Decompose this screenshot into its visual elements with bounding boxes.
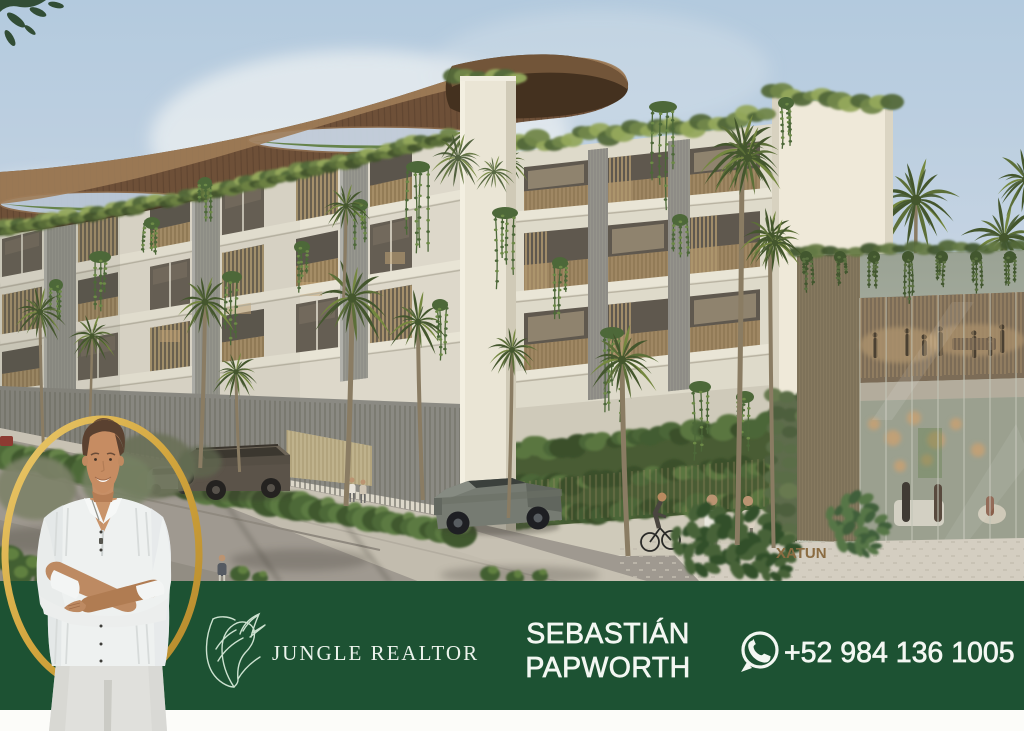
svg-text:PAPWORTH: PAPWORTH: [525, 652, 690, 684]
svg-text:SEBASTIÁN: SEBASTIÁN: [526, 618, 690, 650]
svg-text:+52 984 136 1005: +52 984 136 1005: [784, 637, 1015, 669]
svg-text:JUNGLE REALTOR: JUNGLE REALTOR: [272, 641, 479, 665]
svg-text:XATUN: XATUN: [776, 545, 827, 562]
